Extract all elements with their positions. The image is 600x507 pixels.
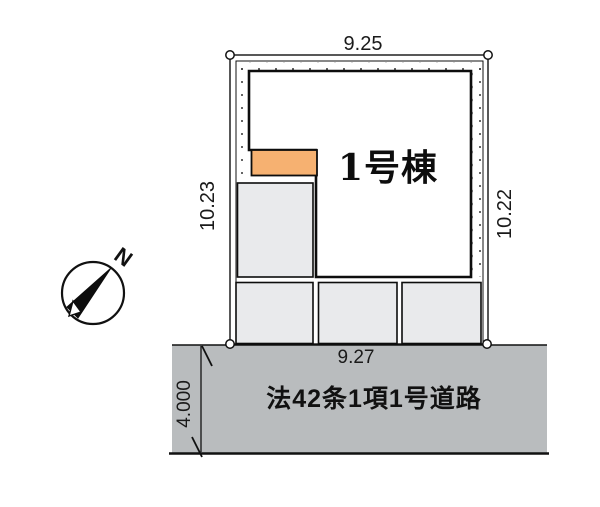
compass: N (62, 242, 137, 324)
parking-stall-1 (236, 283, 313, 344)
survey-point-bottom-left (226, 340, 234, 348)
gravel-strip-left (238, 63, 248, 182)
survey-point-top-right (484, 51, 492, 59)
road-name-label: 法42条1項1号道路 (266, 384, 482, 413)
building-name-label: 1号棟 (338, 147, 438, 189)
survey-point-top-left (226, 51, 234, 59)
dimension-left: 10.23 (197, 181, 219, 231)
dimension-right: 10.22 (494, 189, 516, 239)
site-plan: N 9.25 10.23 10.22 9.27 4.000 1号棟 法42条1項… (0, 0, 600, 507)
survey-point-bottom-right (483, 340, 491, 348)
dimension-top: 9.25 (344, 33, 383, 55)
gravel-strip-right (471, 63, 482, 277)
parking-stall-3 (402, 283, 481, 344)
entrance-porch (252, 150, 318, 176)
dimension-bottom: 9.27 (338, 347, 375, 368)
parking-stall-side (238, 183, 314, 277)
site-plan-drawing: N 9.25 10.23 10.22 9.27 4.000 1号棟 法42条1項… (0, 0, 600, 507)
compass-north-label: N (110, 242, 138, 272)
gravel-strip-top (238, 63, 481, 71)
dimension-road-width: 4.000 (174, 380, 195, 428)
parking-stall-2 (319, 283, 398, 344)
